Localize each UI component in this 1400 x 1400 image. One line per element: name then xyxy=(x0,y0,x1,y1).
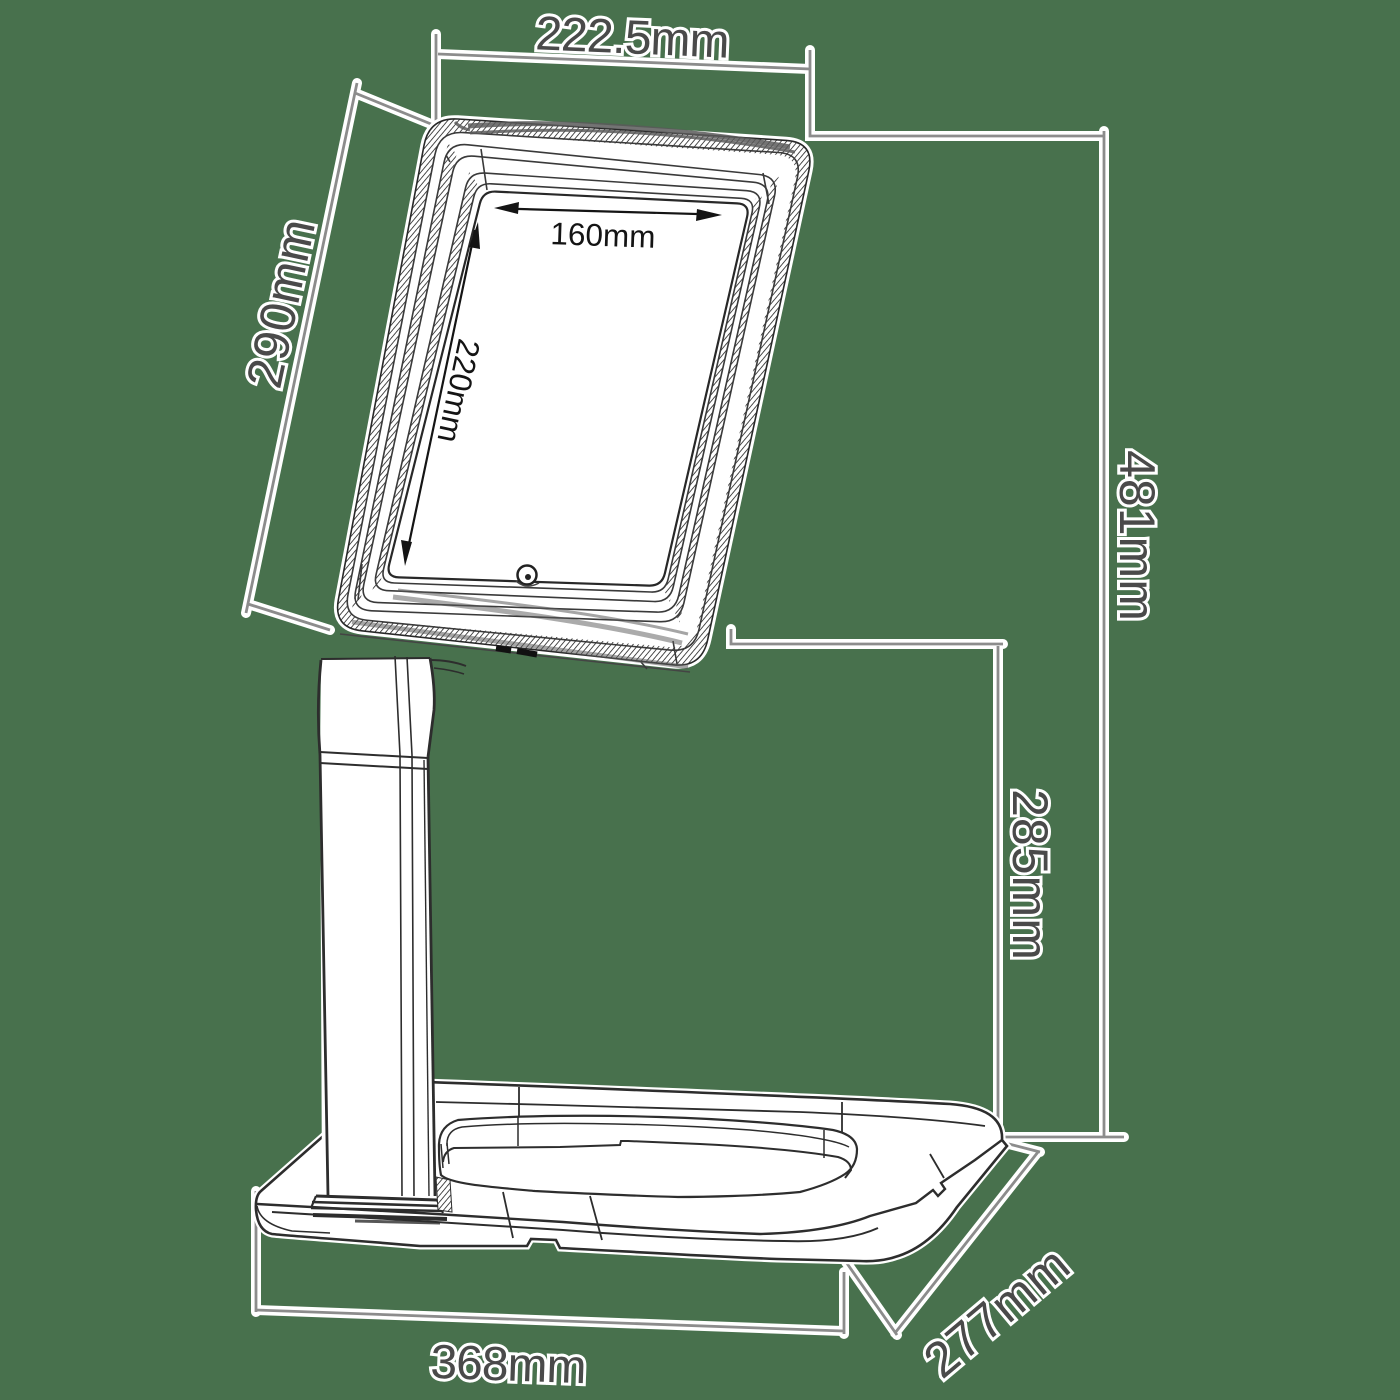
svg-text:285mm: 285mm xyxy=(1002,789,1058,961)
svg-text:368mm: 368mm xyxy=(430,1336,587,1394)
svg-text:222.5mm: 222.5mm xyxy=(534,7,729,68)
svg-text:481mm: 481mm xyxy=(1109,450,1165,622)
svg-text:160mm: 160mm xyxy=(550,215,656,255)
